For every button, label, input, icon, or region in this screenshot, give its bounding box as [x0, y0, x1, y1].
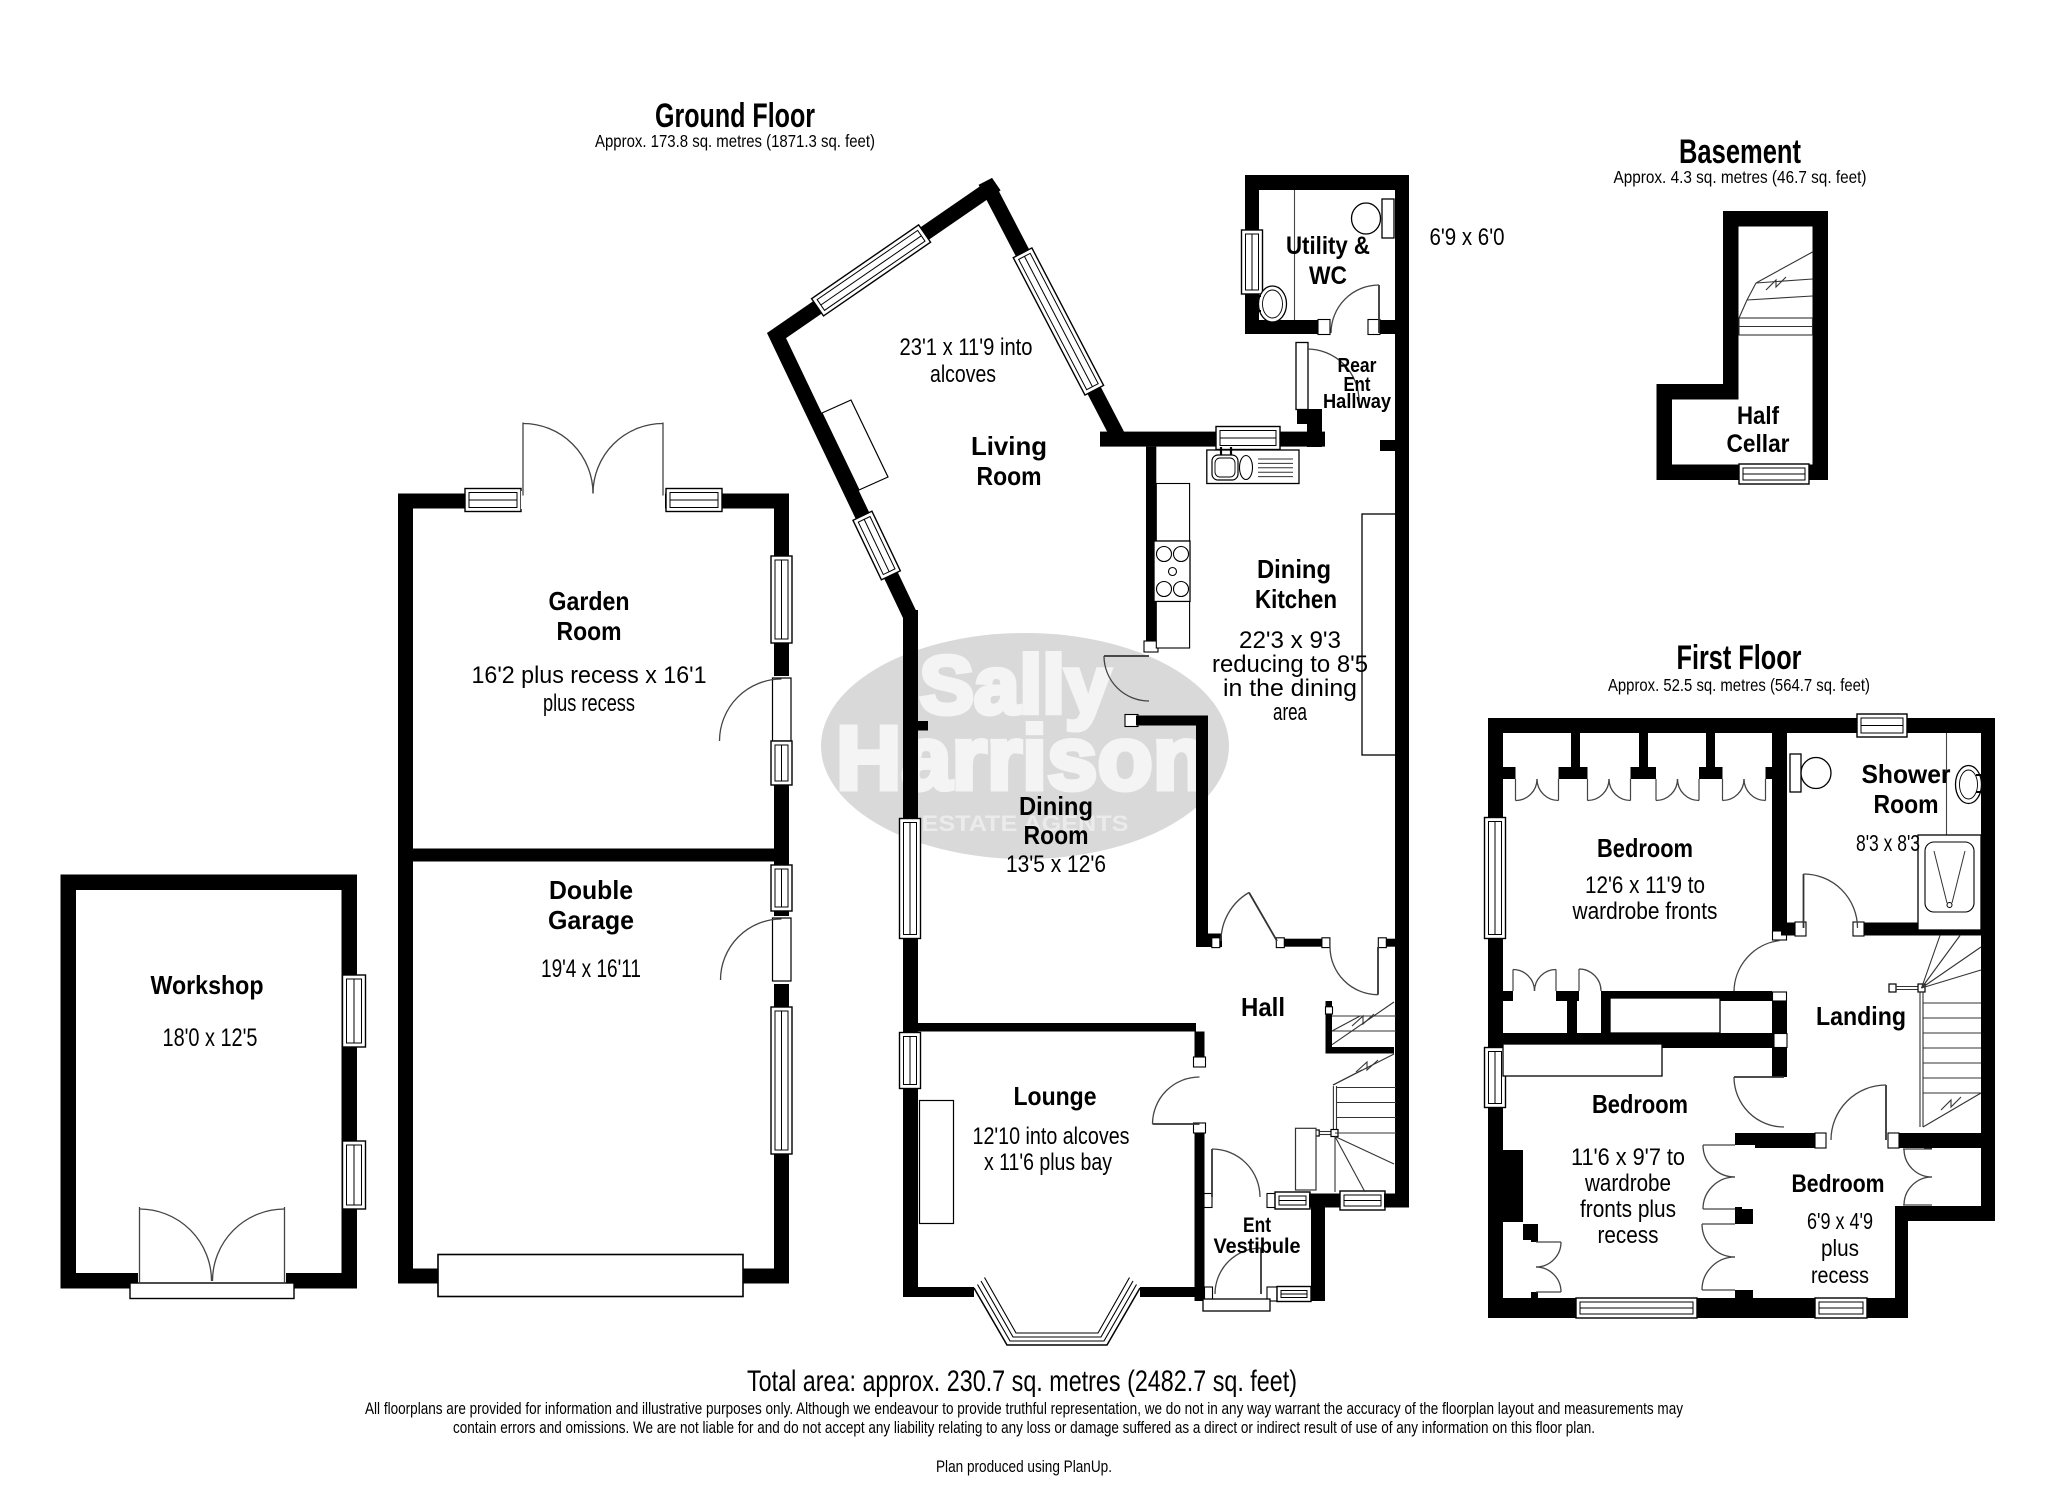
- svg-text:Approx. 173.8 sq. metres (1871: Approx. 173.8 sq. metres (1871.3 sq. fee…: [595, 131, 875, 151]
- svg-text:Dining: Dining: [1019, 791, 1093, 821]
- svg-text:Vestibule: Vestibule: [1214, 1235, 1301, 1258]
- svg-text:All floorplans are provided fo: All floorplans are provided for informat…: [365, 1399, 1684, 1418]
- svg-text:Room: Room: [977, 461, 1042, 491]
- svg-text:Plan produced using PlanUp.: Plan produced using PlanUp.: [936, 1457, 1112, 1476]
- svg-text:Total area: approx. 230.7 sq.: Total area: approx. 230.7 sq. metres (24…: [747, 1365, 1297, 1398]
- svg-text:in the dining: in the dining: [1223, 675, 1357, 702]
- svg-text:Hallway: Hallway: [1323, 391, 1392, 413]
- svg-text:19'4 x 16'11: 19'4 x 16'11: [541, 955, 641, 983]
- svg-text:Basement: Basement: [1679, 133, 1801, 171]
- svg-text:13'5 x 12'6: 13'5 x 12'6: [1006, 851, 1106, 878]
- svg-text:alcoves: alcoves: [930, 361, 996, 388]
- svg-text:Workshop: Workshop: [151, 970, 264, 1000]
- svg-text:Garden: Garden: [549, 586, 630, 616]
- svg-text:Kitchen: Kitchen: [1255, 584, 1337, 614]
- svg-text:reducing to 8'5: reducing to 8'5: [1212, 651, 1368, 678]
- svg-text:wardrobe: wardrobe: [1584, 1170, 1671, 1197]
- svg-text:plus: plus: [1821, 1235, 1859, 1261]
- svg-text:Living: Living: [971, 431, 1047, 461]
- svg-text:11'6 x 9'7 to: 11'6 x 9'7 to: [1571, 1144, 1685, 1171]
- svg-text:Ent: Ent: [1243, 1214, 1271, 1237]
- svg-text:Shower: Shower: [1862, 759, 1951, 789]
- svg-text:Double: Double: [549, 875, 633, 905]
- svg-text:12'10 into alcoves: 12'10 into alcoves: [973, 1123, 1130, 1150]
- svg-text:WC: WC: [1309, 262, 1347, 290]
- svg-text:Bedroom: Bedroom: [1792, 1170, 1885, 1198]
- svg-text:Cellar: Cellar: [1727, 430, 1790, 458]
- svg-text:Approx. 52.5 sq. metres (564.7: Approx. 52.5 sq. metres (564.7 sq. feet): [1608, 675, 1870, 695]
- svg-text:area: area: [1273, 699, 1307, 726]
- svg-text:Bedroom: Bedroom: [1592, 1089, 1688, 1119]
- svg-text:x 11'6 plus bay: x 11'6 plus bay: [984, 1149, 1112, 1176]
- svg-text:23'1 x 11'9 into: 23'1 x 11'9 into: [900, 334, 1033, 361]
- svg-text:6'9 x 6'0: 6'9 x 6'0: [1430, 224, 1505, 251]
- svg-text:Approx. 4.3 sq. metres (46.7 s: Approx. 4.3 sq. metres (46.7 sq. feet): [1614, 167, 1867, 187]
- svg-text:Room: Room: [1024, 820, 1089, 850]
- svg-text:First Floor: First Floor: [1677, 639, 1802, 677]
- svg-text:Lounge: Lounge: [1014, 1081, 1097, 1111]
- svg-text:Utility &: Utility &: [1286, 232, 1370, 260]
- svg-text:Garage: Garage: [548, 905, 634, 935]
- svg-text:recess: recess: [1598, 1222, 1659, 1249]
- svg-text:16'2 plus recess x 16'1: 16'2 plus recess x 16'1: [472, 662, 707, 689]
- svg-text:Bedroom: Bedroom: [1597, 833, 1693, 863]
- svg-text:Landing: Landing: [1816, 1001, 1906, 1031]
- svg-text:Half: Half: [1737, 402, 1780, 430]
- svg-text:contain errors and omissions.: contain errors and omissions. We are not…: [453, 1418, 1595, 1437]
- svg-text:plus recess: plus recess: [543, 690, 635, 717]
- svg-text:18'0 x 12'5: 18'0 x 12'5: [163, 1024, 258, 1052]
- svg-text:Dining: Dining: [1257, 554, 1331, 584]
- svg-text:fronts plus: fronts plus: [1580, 1196, 1676, 1223]
- svg-text:22'3 x 9'3: 22'3 x 9'3: [1239, 627, 1341, 654]
- svg-text:wardrobe fronts: wardrobe fronts: [1572, 898, 1718, 925]
- svg-text:Ground Floor: Ground Floor: [655, 97, 815, 135]
- svg-text:8'3 x 8'3: 8'3 x 8'3: [1856, 830, 1920, 856]
- svg-text:Room: Room: [1874, 789, 1939, 819]
- svg-text:Room: Room: [557, 616, 622, 646]
- svg-text:6'9 x 4'9: 6'9 x 4'9: [1807, 1208, 1873, 1234]
- svg-text:Hall: Hall: [1241, 992, 1285, 1022]
- svg-text:12'6 x 11'9 to: 12'6 x 11'9 to: [1585, 872, 1705, 899]
- svg-text:recess: recess: [1811, 1262, 1869, 1288]
